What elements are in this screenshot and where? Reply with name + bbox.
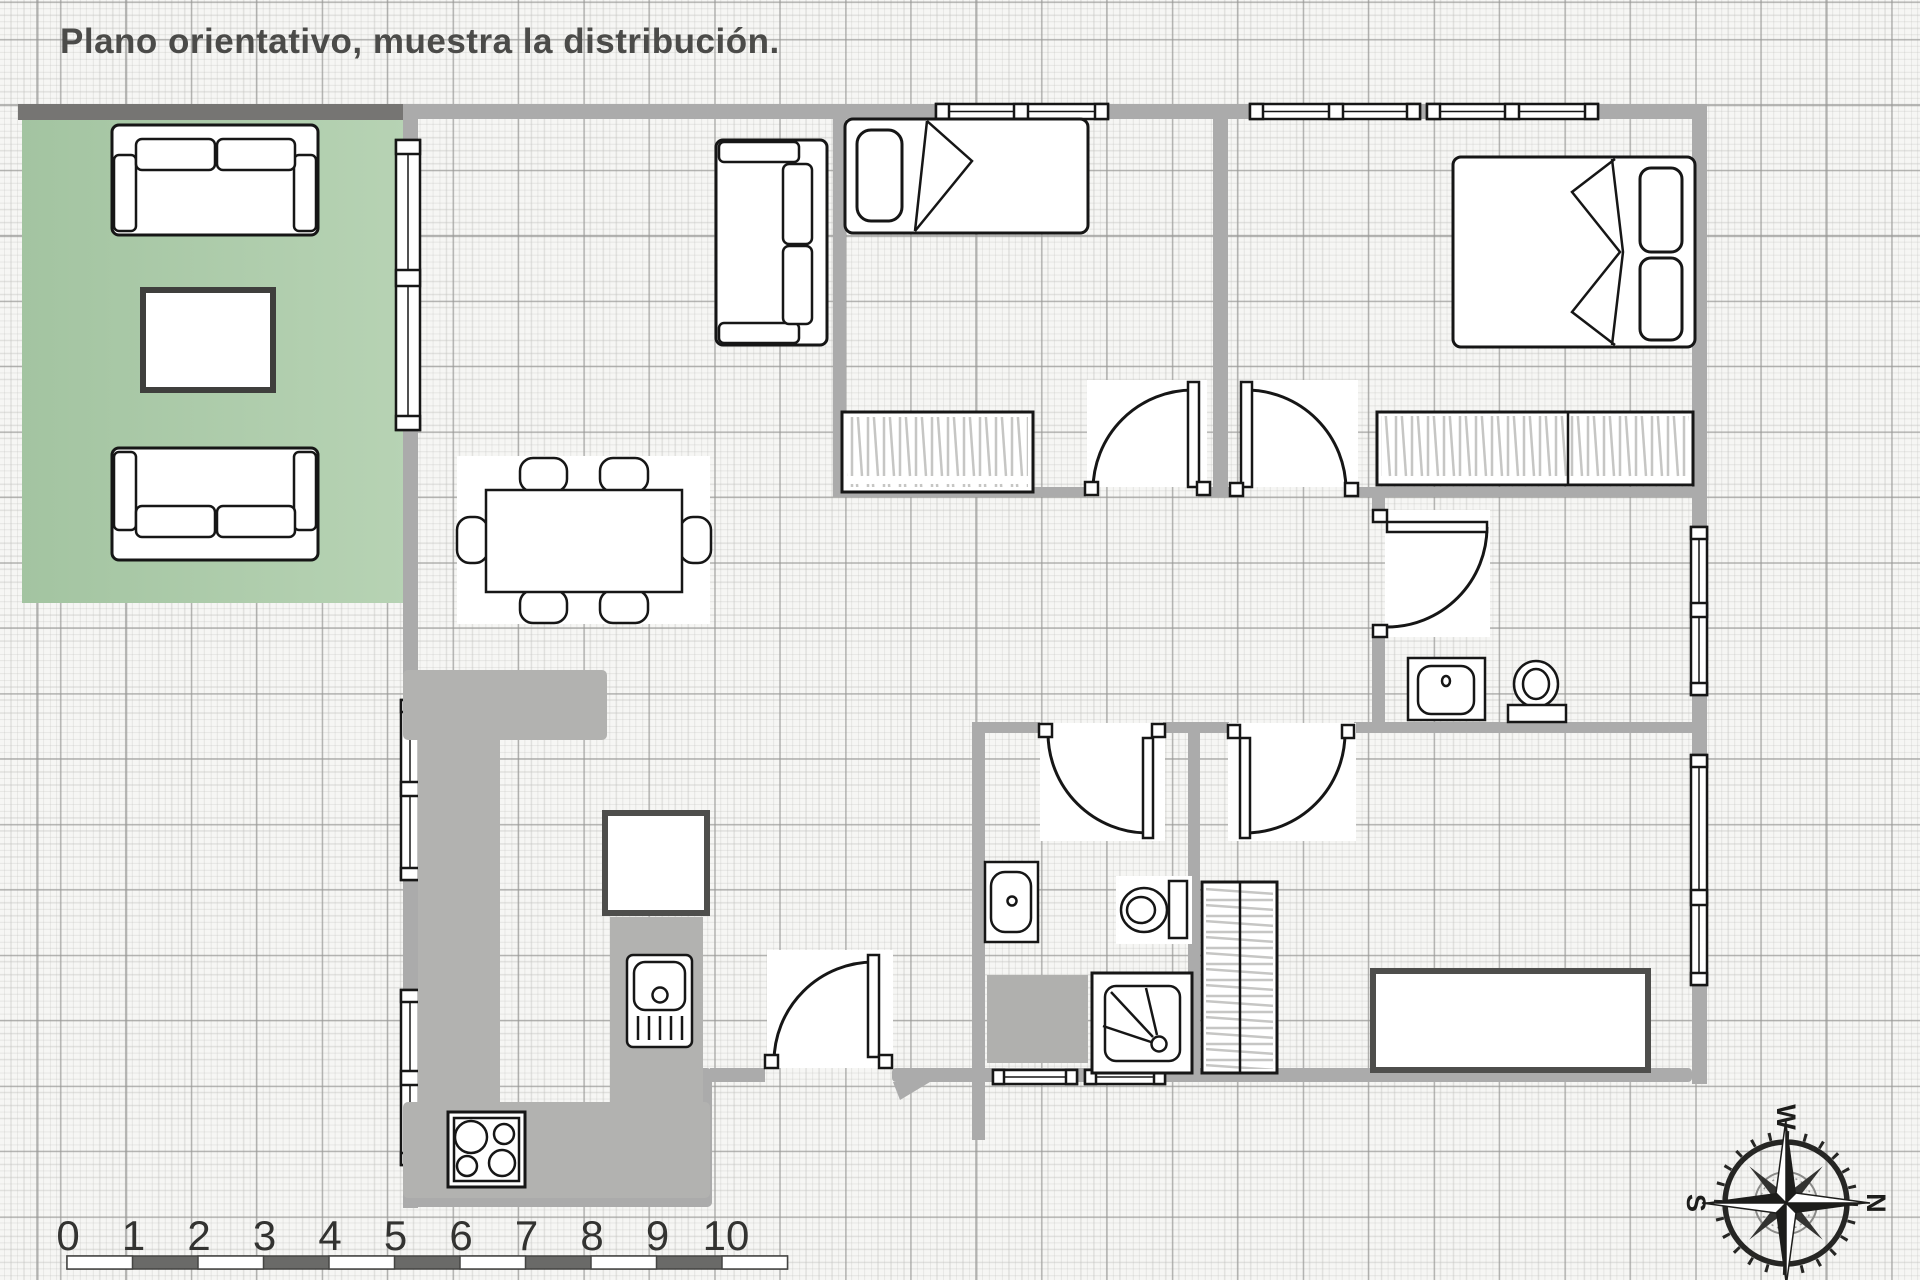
double-bed	[1453, 157, 1695, 347]
bathroom-upper	[1408, 658, 1566, 722]
wall-bath1-left	[972, 733, 985, 1078]
compass-west-label: W	[1771, 1104, 1801, 1130]
window	[1427, 104, 1598, 119]
compass-rose: W N S E	[1681, 1104, 1891, 1280]
ruler-label: 10	[703, 1212, 750, 1259]
dining-table	[486, 490, 682, 592]
window	[1250, 104, 1420, 119]
wall-corridor	[972, 722, 1040, 733]
coffee-table	[143, 290, 273, 390]
toilet	[1508, 661, 1566, 722]
wall-bathroom-left	[1372, 637, 1385, 733]
kitchen-counter	[403, 670, 607, 740]
door-back-room	[1228, 723, 1356, 841]
dining-table-set	[457, 456, 711, 624]
window	[1691, 755, 1707, 985]
wall-porch-stub	[972, 1082, 985, 1140]
pillow	[1640, 168, 1682, 252]
scale-ruler: 0 1 2 3 4 5 6 7 8 9 10	[56, 1212, 787, 1269]
kitchen-island	[605, 813, 707, 913]
wall-bedroom-divider	[1213, 110, 1228, 497]
chair	[600, 458, 648, 492]
wall-corridor	[1354, 722, 1692, 733]
pillow	[1640, 258, 1682, 340]
ruler-label: 6	[449, 1212, 472, 1259]
pillow	[857, 130, 902, 221]
wardrobe	[1202, 882, 1277, 1073]
ruler-label: 7	[515, 1212, 538, 1259]
kitchen-counter	[418, 740, 500, 1102]
terrace-top-wall	[18, 104, 410, 120]
bathroom-lower	[985, 862, 1192, 1073]
door-bedroom-1	[1085, 380, 1210, 495]
stove	[448, 1112, 525, 1187]
bed-plain	[1373, 971, 1648, 1070]
kitchen-sink	[627, 955, 692, 1047]
floorplan-canvas: 0 1 2 3 4 5 6 7 8 9 10	[0, 0, 1920, 1280]
door-bathroom-lower	[1039, 723, 1165, 841]
chair	[520, 458, 567, 492]
washbasin	[985, 862, 1038, 942]
ruler-label: 2	[187, 1212, 210, 1259]
wall-entrance	[710, 1068, 765, 1082]
chair	[680, 517, 711, 563]
wardrobe	[1377, 412, 1693, 485]
chair	[600, 590, 648, 623]
chair	[457, 517, 488, 563]
ruler-label: 4	[318, 1212, 341, 1259]
washbasin	[1408, 658, 1485, 720]
door-bedroom-2	[1230, 380, 1358, 496]
ruler-label: 0	[56, 1212, 79, 1259]
kitchen	[403, 670, 710, 1198]
wardrobe	[842, 412, 1033, 492]
sofa	[716, 140, 827, 345]
sofa	[112, 448, 318, 560]
back-room	[1202, 882, 1648, 1073]
ruler-label: 3	[253, 1212, 276, 1259]
shower	[1092, 973, 1192, 1073]
ruler-label: 1	[122, 1212, 145, 1259]
window	[936, 104, 1108, 119]
sofa	[112, 125, 318, 235]
window	[1691, 527, 1707, 695]
wall-entrance-notch	[893, 1082, 930, 1100]
ruler-label: 9	[646, 1212, 669, 1259]
toilet	[1116, 876, 1192, 944]
chair	[520, 590, 567, 623]
ruler-label: 8	[580, 1212, 603, 1259]
scale-bar	[67, 1256, 788, 1269]
compass-north-label: N	[1861, 1193, 1891, 1213]
ruler-label: 5	[384, 1212, 407, 1259]
door-main-entrance	[765, 950, 893, 1068]
single-bed	[845, 119, 1088, 233]
window	[396, 140, 420, 430]
compass-south-label: S	[1681, 1194, 1711, 1212]
door-upper-bathroom	[1373, 510, 1490, 637]
window	[993, 1070, 1077, 1084]
page-title: Plano orientativo, muestra la distribuci…	[60, 22, 780, 62]
vanity-counter	[987, 975, 1088, 1063]
wall-bedrooms-bottom	[1347, 487, 1705, 497]
